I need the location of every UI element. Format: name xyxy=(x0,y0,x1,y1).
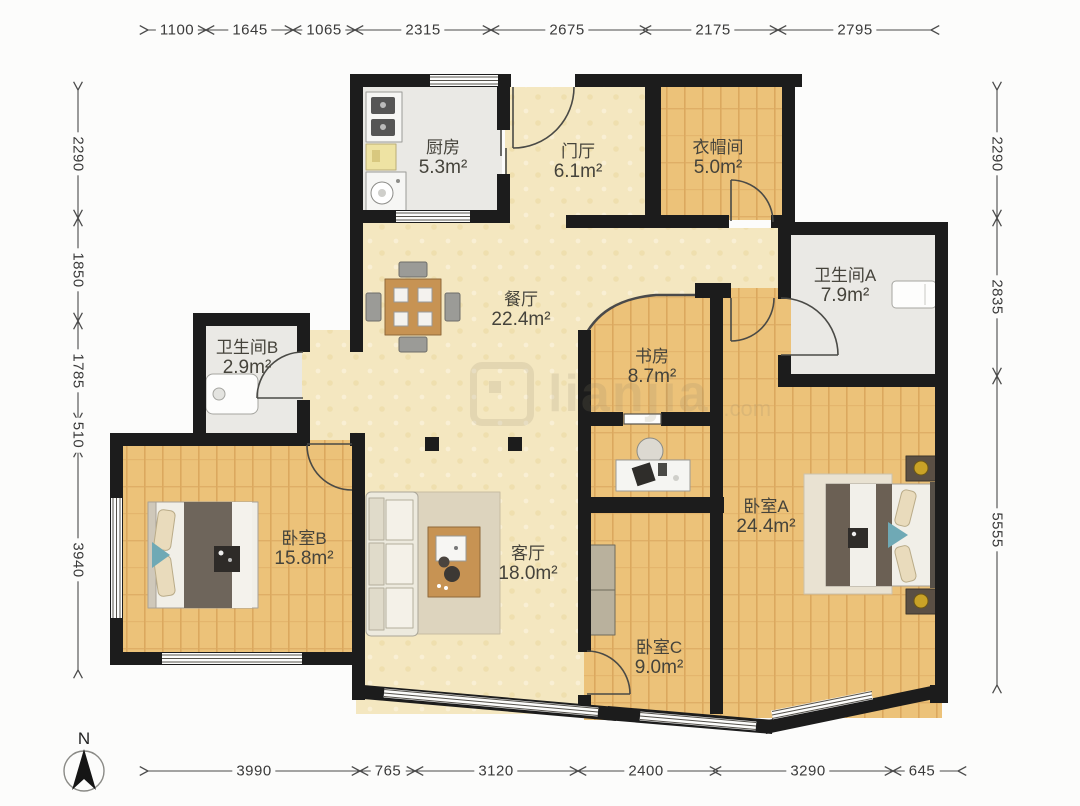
stove-icon xyxy=(366,92,402,142)
dimension-label: 1645 xyxy=(228,22,271,39)
room-name: 书房 xyxy=(628,347,677,366)
bedroom-b-bottom-window xyxy=(162,653,302,664)
floor-plan-canvas xyxy=(0,0,1080,806)
room-name: 衣帽间 xyxy=(693,138,744,157)
room-name: 卫生间B xyxy=(216,338,278,357)
dimension-label: 3290 xyxy=(786,763,829,780)
compass-north-label: N xyxy=(78,729,90,749)
dimension-label: 765 xyxy=(371,763,406,780)
room-label-bedroom-c: 卧室C 9.0m² xyxy=(635,638,684,678)
kitchen-top-window xyxy=(430,75,498,86)
room-area: 18.0m² xyxy=(498,563,557,584)
room-area: 8.7m² xyxy=(628,366,677,387)
washbasin-icon xyxy=(892,281,936,308)
room-name: 卧室A xyxy=(736,497,795,516)
room-label-bathroom-a: 卫生间A 7.9m² xyxy=(814,266,876,306)
room-area: 5.0m² xyxy=(693,157,744,178)
room-label-study: 书房 8.7m² xyxy=(628,347,677,387)
room-area: 5.3m² xyxy=(419,157,468,178)
dimension-label: 5555 xyxy=(989,508,1006,551)
room-label-cloakroom: 衣帽间 5.0m² xyxy=(693,138,744,178)
dimension-label: 3990 xyxy=(232,763,275,780)
dimension-label: 2175 xyxy=(691,22,734,39)
room-name: 厨房 xyxy=(419,138,468,157)
room-area: 7.9m² xyxy=(814,285,876,306)
dimension-label: 1785 xyxy=(70,349,87,392)
coffee-table-icon xyxy=(428,527,480,597)
room-label-living: 客厅 18.0m² xyxy=(498,544,557,584)
room-area: 22.4m² xyxy=(491,309,550,330)
dimension-label: 3940 xyxy=(70,538,87,581)
sofa-icon xyxy=(366,492,418,636)
room-name: 卧室C xyxy=(635,638,684,657)
bedroom-b-left-window xyxy=(111,498,122,618)
room-name: 门厅 xyxy=(554,142,603,161)
dimension-label: 645 xyxy=(905,763,940,780)
room-area: 24.4m² xyxy=(736,516,795,537)
kitchen-counter-icon xyxy=(366,144,396,170)
room-name: 卫生间A xyxy=(814,266,876,285)
dimension-label: 510 xyxy=(70,418,87,453)
room-area: 6.1m² xyxy=(554,161,603,182)
room-name: 卧室B xyxy=(274,529,333,548)
dimension-label: 2835 xyxy=(989,275,1006,318)
dimension-label: 2795 xyxy=(833,22,876,39)
hallway-floor xyxy=(645,228,781,288)
bathtub-icon xyxy=(206,374,258,414)
room-label-bathroom-b: 卫生间B 2.9m² xyxy=(216,338,278,378)
north-arrow-icon xyxy=(72,749,96,790)
kitchen-pass-window xyxy=(396,211,470,222)
room-area: 9.0m² xyxy=(635,657,684,678)
dimension-label: 1850 xyxy=(70,248,87,291)
bed-b-icon xyxy=(148,502,258,608)
room-label-bedroom-a: 卧室A 24.4m² xyxy=(736,497,795,537)
compass xyxy=(64,749,104,791)
sink-icon xyxy=(366,172,406,214)
dimension-label: 2400 xyxy=(624,763,667,780)
room-label-dining: 餐厅 22.4m² xyxy=(491,290,550,330)
dimension-label: 2290 xyxy=(989,132,1006,175)
room-label-bedroom-b: 卧室B 15.8m² xyxy=(274,529,333,569)
dimension-label: 2315 xyxy=(401,22,444,39)
dimension-label: 2290 xyxy=(70,132,87,175)
room-label-kitchen: 厨房 5.3m² xyxy=(419,138,468,178)
room-name: 客厅 xyxy=(498,544,557,563)
dimension-label: 3120 xyxy=(474,763,517,780)
dimension-label: 1065 xyxy=(302,22,345,39)
dimension-label: 2675 xyxy=(545,22,588,39)
room-area: 2.9m² xyxy=(216,357,278,378)
dimension-label: 1100 xyxy=(156,22,198,39)
bed-a-icon xyxy=(804,456,938,614)
floor-plan-page: lianjia .com 厨房 5.3m² 门厅 6.1m² 衣帽间 5.0m²… xyxy=(0,0,1080,806)
room-area: 15.8m² xyxy=(274,548,333,569)
room-label-foyer: 门厅 6.1m² xyxy=(554,142,603,182)
room-name: 餐厅 xyxy=(491,290,550,309)
